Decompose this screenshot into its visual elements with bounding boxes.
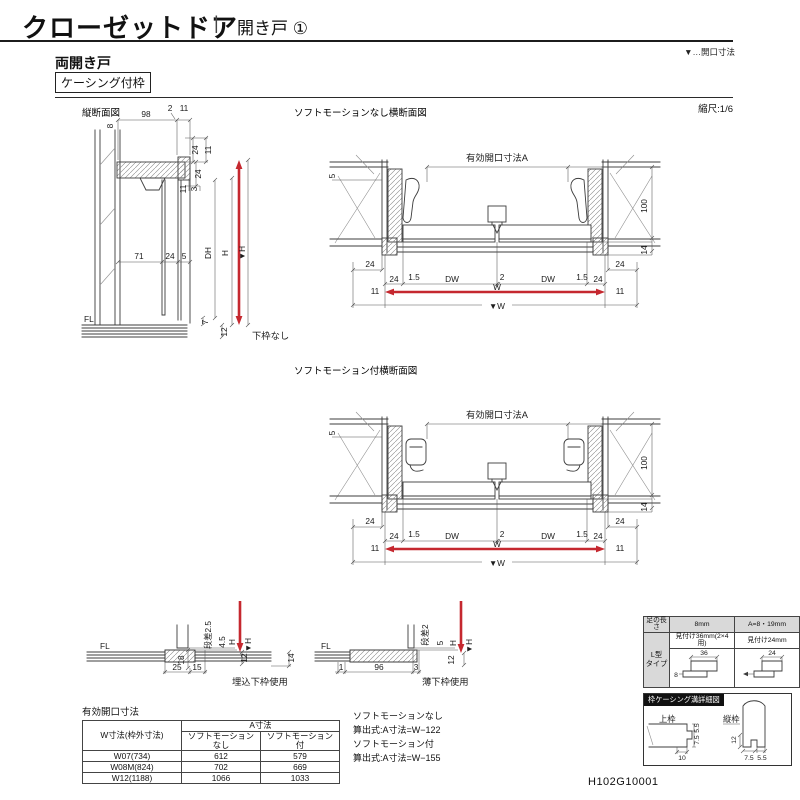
dim-dw-r: DW — [541, 531, 555, 541]
dim-24-outer-l: 24 — [365, 259, 375, 269]
dim-vw: ▼W — [489, 558, 505, 568]
thin-sill — [350, 650, 417, 662]
formula-block: ソフトモーションなし 算出式:A寸法=W−122 ソフトモーション付 算出式:A… — [353, 710, 443, 766]
row-label-ltype: L型 タイプ — [644, 632, 670, 687]
fl-label: FL — [321, 641, 331, 651]
section-rule — [55, 97, 733, 98]
casing-24-drawing: 24 — [736, 649, 798, 687]
dim-3: 3 — [189, 186, 199, 191]
cell-w: W08M(824) — [83, 762, 182, 773]
right-hinge — [571, 178, 587, 222]
door-bottom — [408, 625, 414, 648]
table-row: W12(1188) 1066 1033 — [83, 773, 340, 784]
dim-step: 段差2 — [420, 624, 430, 646]
casing-profile-24: 24 — [735, 648, 800, 687]
col-header-soft: ソフトモーション付 — [261, 732, 340, 751]
dim-5-5: 5.5 — [694, 723, 701, 733]
dim-12: 12 — [219, 327, 229, 337]
dim-2: 2 — [168, 103, 173, 113]
scale-note: 縮尺:1/6 — [633, 101, 733, 115]
closer-block — [140, 178, 165, 190]
dim-opening-a: 有効開口寸法A — [466, 152, 529, 163]
dim-4-5: 4.5 — [217, 636, 227, 648]
corner-foot-length: 足の長さ — [644, 617, 670, 633]
left-damper — [406, 439, 426, 465]
dim-5: 5 — [435, 640, 445, 645]
dim-12: 12 — [239, 653, 249, 663]
cell-nosoft: 1066 — [182, 773, 261, 784]
frame-type-badge: ケーシング付枠 — [55, 72, 151, 93]
dim-8: 8 — [105, 123, 115, 128]
lintel — [117, 162, 185, 178]
formula-soft-label: ソフトモーション付 — [353, 738, 443, 752]
dim-2: 2 — [500, 529, 505, 539]
side-frame-profile: 12 7.5 5.5 — [731, 701, 767, 762]
casing-type-table: 足の長さ 8mm A=8・19mm L型 タイプ 見付け36mm(2×4用) 見… — [643, 616, 800, 688]
dim-w: W — [493, 539, 501, 549]
frame-head — [178, 157, 190, 180]
dim-5: 5 — [182, 251, 187, 261]
dim-vh: ▼H — [243, 638, 253, 652]
dim-w: W — [493, 282, 501, 292]
thin-sill-caption: 薄下枠使用 — [422, 676, 469, 687]
dim-7-5b: 7.5 — [744, 755, 754, 762]
dim-11-r: 11 — [616, 286, 625, 296]
dim-12: 12 — [446, 655, 456, 665]
dim-10: 10 — [678, 755, 686, 762]
dim-vh: ▼H — [464, 639, 474, 653]
dim-36: 36 — [700, 650, 708, 657]
dim-1-5-r: 1.5 — [576, 272, 588, 282]
dim-5-5b: 5.5 — [757, 755, 767, 762]
dim-98: 98 — [141, 109, 151, 119]
table-row: W08M(824) 702 669 — [83, 762, 340, 773]
dim-96: 96 — [374, 662, 384, 672]
dim-h: H — [220, 250, 230, 256]
door-type-heading: 両開き戸 — [55, 53, 111, 73]
cell-soft: 669 — [261, 762, 340, 773]
fl-label: FL — [100, 641, 110, 651]
door-panels — [403, 206, 591, 242]
handle — [488, 206, 506, 222]
recessed-sill-caption: 埋込下枠使用 — [232, 676, 288, 687]
right-damper — [564, 439, 584, 465]
dimension-labels: 段差2.5 4.5 H ▼H 12 14 18 25 15 FL 埋込下枠使用 — [100, 621, 296, 687]
cell-nosoft: 612 — [182, 751, 261, 762]
no-sill-note: 下枠なし — [252, 330, 289, 341]
category-label: 開き戸 ① — [237, 14, 308, 39]
dim-1-5-r: 1.5 — [576, 529, 588, 539]
floor-lines — [82, 325, 187, 337]
dim-7-5: 7.5 — [694, 735, 701, 745]
vertical-section-drawing: 98 2 11 8 24 11 24 11 3 71 24 5 DH H ▼H … — [80, 103, 300, 358]
dim-dw-l: DW — [445, 274, 459, 284]
dim-25: 25 — [172, 662, 182, 672]
casing-36-drawing: 36 8 — [671, 649, 733, 687]
dim-dw-l: DW — [445, 531, 459, 541]
dim-24-inner-l: 24 — [389, 531, 399, 541]
dim-14: 14 — [639, 245, 649, 255]
door-panels — [403, 463, 591, 499]
dim-11: 11 — [180, 103, 189, 113]
dim-2: 2 — [500, 272, 505, 282]
dim-11-l: 11 — [371, 286, 380, 296]
dim-100: 100 — [639, 456, 649, 470]
dim-11-l: 11 — [371, 543, 380, 553]
dim-1: 1 — [339, 662, 344, 672]
document-number: H102G10001 — [588, 776, 658, 788]
left-hinge — [403, 178, 419, 222]
dim-71: 71 — [134, 251, 144, 261]
dim-11a: 11 — [203, 145, 213, 154]
dim-dh: DH — [203, 247, 213, 259]
formula-nosoft: 算出式:A寸法=W−122 — [353, 724, 443, 738]
dim-14: 14 — [286, 653, 296, 663]
note-36mm: 見付け36mm(2×4用) — [670, 632, 735, 648]
dim-24a: 24 — [190, 145, 200, 155]
dim-24-inner-l: 24 — [389, 274, 399, 284]
col-a8-19mm: A=8・19mm — [735, 617, 800, 633]
col-8mm: 8mm — [670, 617, 735, 633]
wall-structure — [82, 130, 190, 337]
col-header-nosoft: ソフトモーションなし — [182, 732, 261, 751]
fl-label: FL — [84, 314, 94, 324]
upper-frame-profile: 5.5 7.5 10 — [647, 723, 701, 762]
dim-14: 14 — [639, 502, 649, 512]
dim-24-outer-l: 24 — [365, 516, 375, 526]
cell-w: W12(1188) — [83, 773, 182, 784]
col-header-a: A寸法 — [182, 721, 340, 732]
left-jamb — [388, 426, 402, 499]
casing-profile-36: 36 8 — [670, 648, 735, 687]
casing-groove-detail-box: 枠ケーシング溝詳細図 上枠 縦枠 5.5 7.5 10 12 7.5 5.5 — [643, 693, 792, 766]
handle — [488, 463, 506, 479]
dim-opening-a: 有効開口寸法A — [466, 409, 529, 420]
table-row: W07(734) 612 579 — [83, 751, 340, 762]
dim-step: 段差2.5 — [203, 621, 213, 650]
dim-11b: 11 — [178, 184, 188, 193]
dim-1-5-l: 1.5 — [408, 272, 420, 282]
dim-24: 24 — [768, 650, 776, 657]
dim-5: 5 — [327, 173, 337, 178]
foot-arrow-icon — [743, 672, 748, 676]
dim-foot-8: 8 — [674, 672, 678, 679]
cell-soft: 579 — [261, 751, 340, 762]
dim-vh: ▼H — [237, 246, 247, 260]
dim-15: 15 — [192, 662, 202, 672]
dim-1-5-l: 1.5 — [408, 529, 420, 539]
dim-24b: 24 — [193, 169, 203, 179]
dim-24-inner-r: 24 — [593, 531, 603, 541]
dimension-lines — [116, 113, 250, 339]
header-rule — [0, 40, 733, 42]
thin-sill-drawing: 段差2 5 H ▼H 12 1 96 3 FL 薄下枠使用 — [315, 595, 505, 690]
dim-11-r: 11 — [616, 543, 625, 553]
upper-frame-label: 上枠 — [659, 714, 676, 724]
dim-24-inner-r: 24 — [593, 274, 603, 284]
col-header-w: W寸法(枠外寸法) — [83, 721, 182, 751]
title-divider: | — [214, 13, 219, 34]
opening-legend-note: ▼…開口寸法 — [615, 46, 735, 58]
dim-h: H — [448, 640, 458, 646]
dim-7: 7 — [200, 319, 210, 324]
door-panel-edge — [162, 157, 190, 323]
table-header-row: W寸法(枠外寸法) A寸法 — [83, 721, 340, 732]
cell-nosoft: 702 — [182, 762, 261, 773]
plan-soft-title: ソフトモーション付横断面図 — [294, 363, 417, 377]
dim-vw: ▼W — [489, 301, 505, 311]
cell-soft: 1033 — [261, 773, 340, 784]
plan-nosoft-title: ソフトモーションなし横断面図 — [294, 105, 427, 119]
cell-w: W07(734) — [83, 751, 182, 762]
dim-h: H — [227, 639, 237, 645]
formula-nosoft-label: ソフトモーションなし — [353, 710, 443, 724]
opening-size-table: 有効開口寸法 W寸法(枠外寸法) A寸法 ソフトモーションなし ソフトモーション… — [82, 704, 340, 784]
note-24mm: 見付け24mm — [735, 632, 800, 648]
casing-groove-drawing: 上枠 縦枠 5.5 7.5 10 12 7.5 5.5 — [644, 694, 789, 764]
dim-24-outer-r: 24 — [615, 516, 625, 526]
opening-table-title: 有効開口寸法 — [82, 704, 340, 718]
formula-soft: 算出式:A寸法=W−155 — [353, 752, 443, 766]
dim-3: 3 — [414, 662, 419, 672]
dim-12: 12 — [731, 736, 738, 744]
dim-5: 5 — [327, 430, 337, 435]
plan-section-nosoft-drawing: 有効開口寸法A 5 100 14 24 24 24 1.5 DW 2 DW 1.… — [330, 140, 660, 315]
plan-section-soft-drawing: 有効開口寸法A 5 100 14 24 24 24 1.5 DW 2 DW 1.… — [330, 397, 660, 572]
dim-24c: 24 — [165, 251, 175, 261]
side-frame-label: 縦枠 — [723, 714, 740, 724]
left-jamb — [388, 169, 402, 242]
recessed-sill-drawing: 段差2.5 4.5 H ▼H 12 14 18 25 15 FL 埋込下枠使用 — [85, 595, 310, 690]
dim-24-outer-r: 24 — [615, 259, 625, 269]
dim-dw-r: DW — [541, 274, 555, 284]
door-bottom — [177, 625, 188, 648]
dim-100: 100 — [639, 199, 649, 213]
